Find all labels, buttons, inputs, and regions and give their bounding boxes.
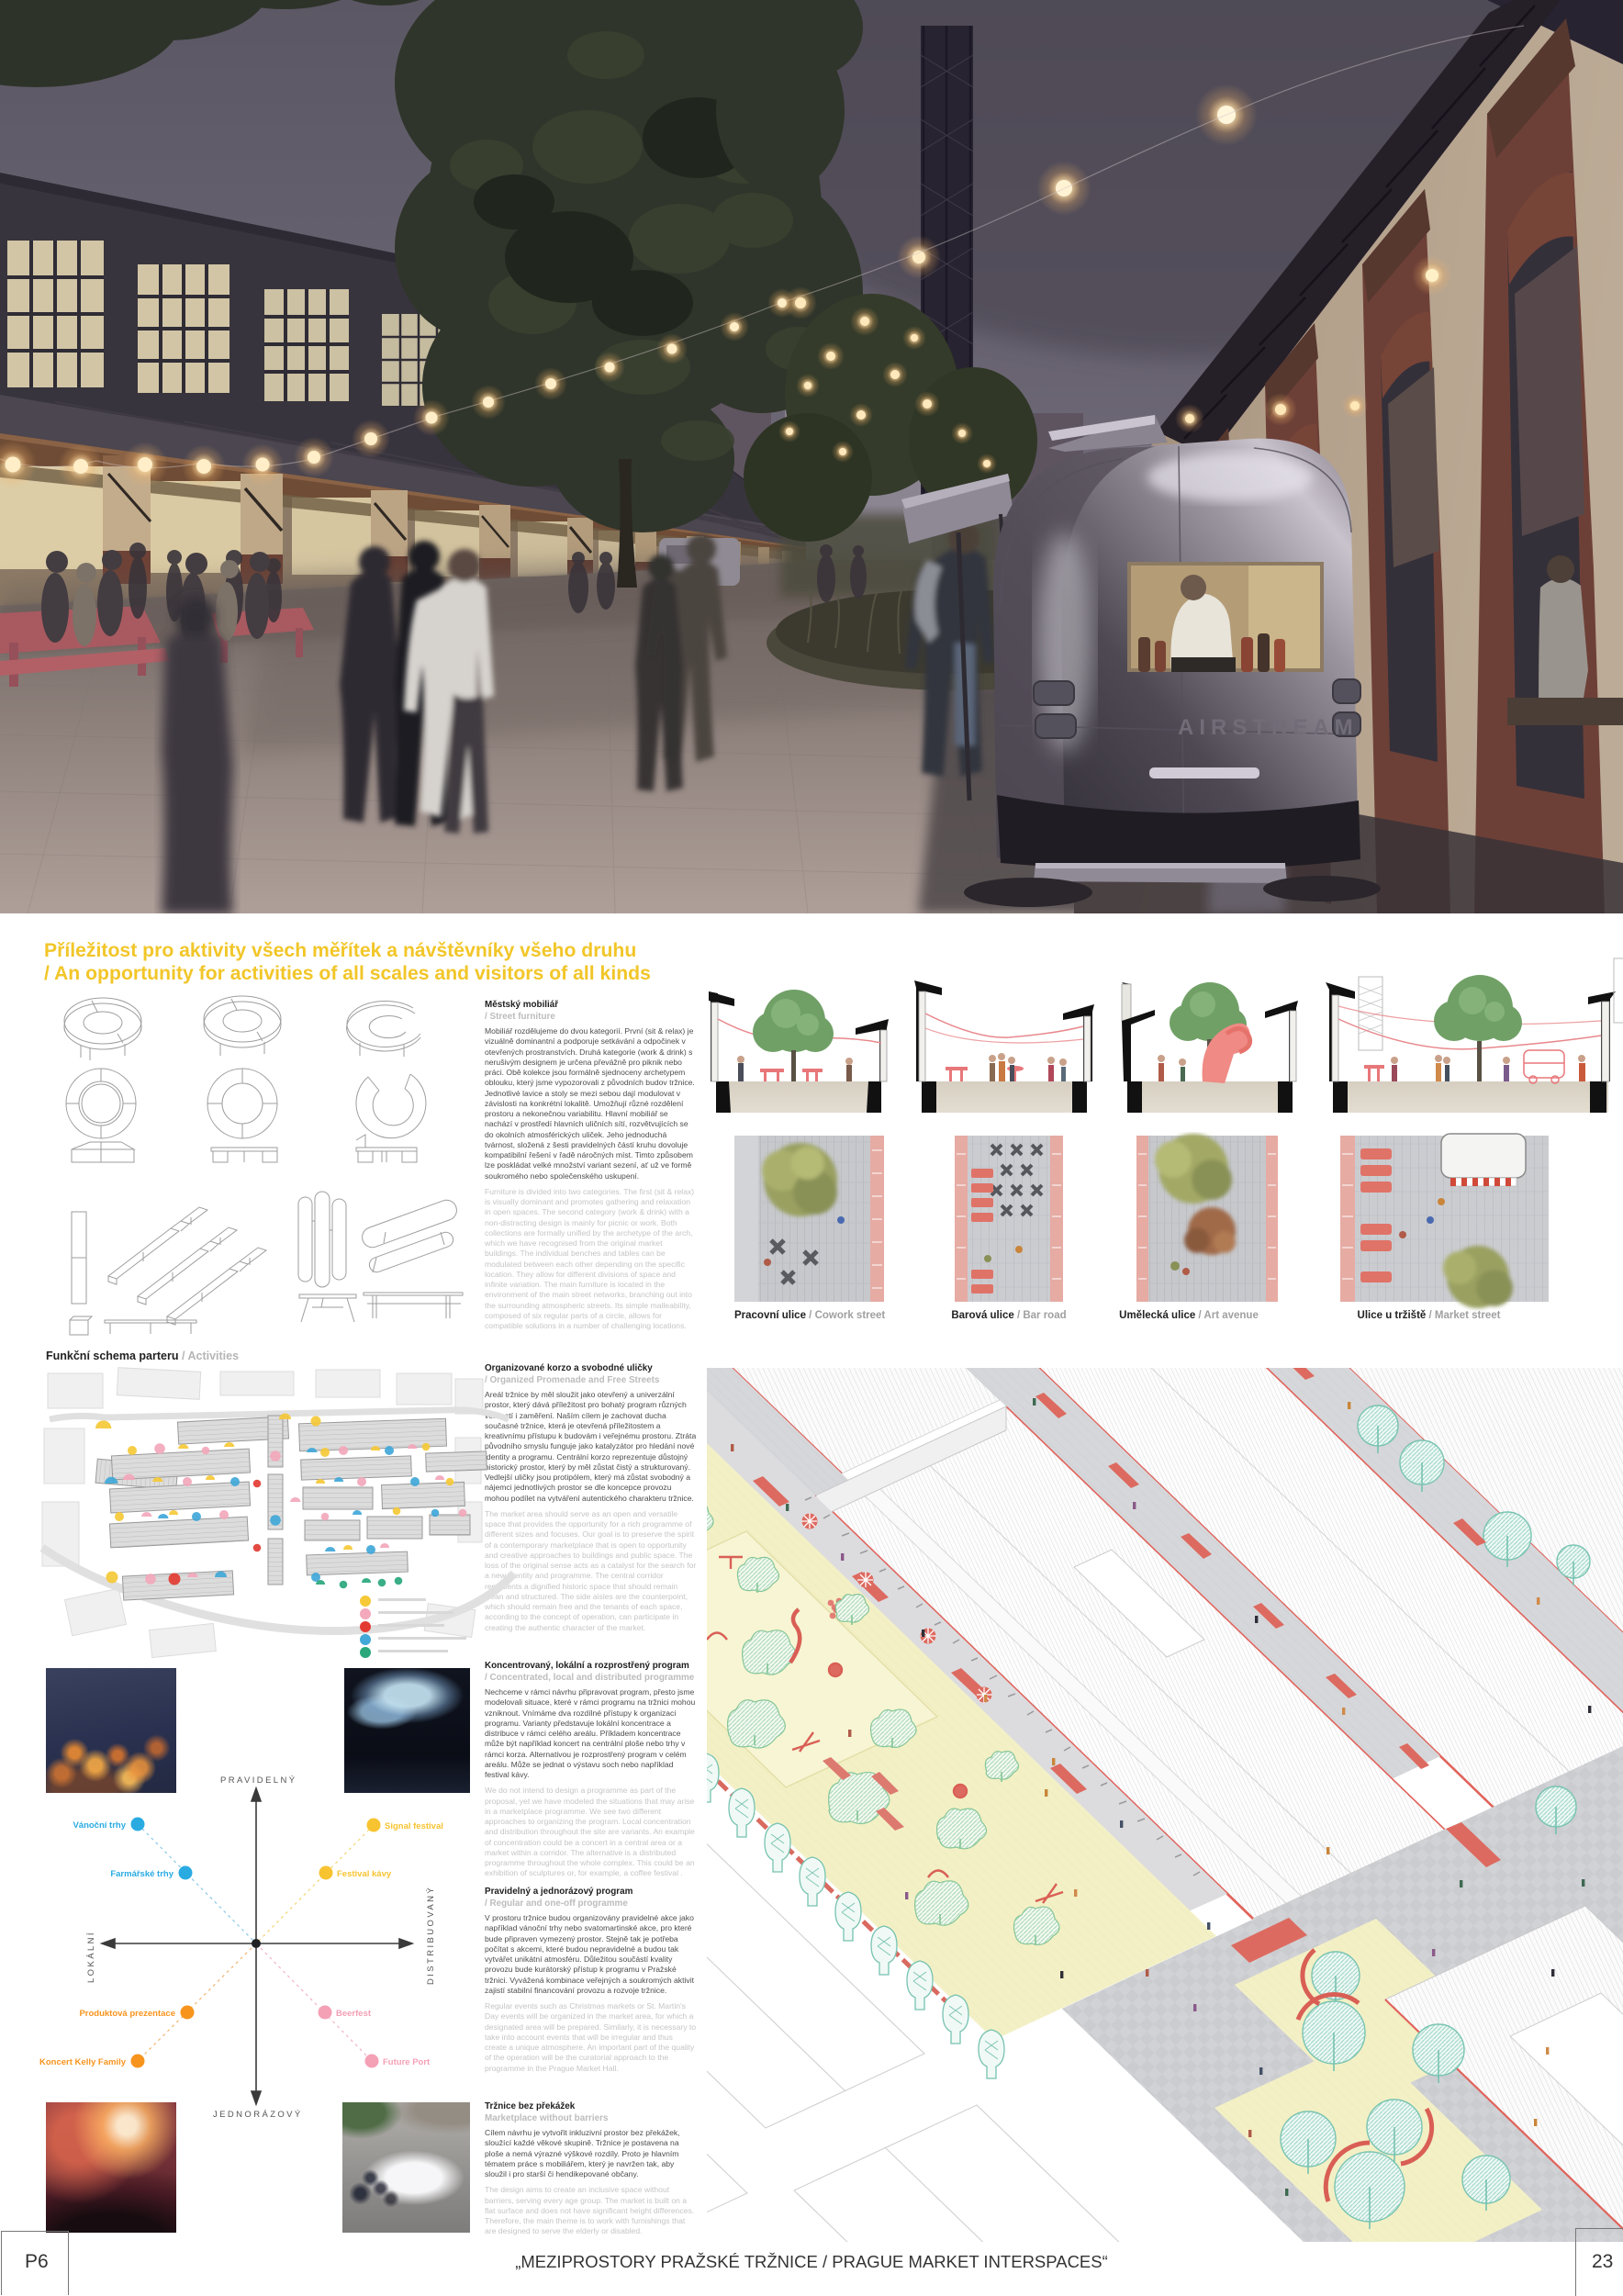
svg-text:Beerfest: Beerfest [336,2009,372,2019]
svg-text:Festival kávy: Festival kávy [337,1869,392,1879]
svg-text:DISTRIBUOVANÝ: DISTRIBUOVANÝ [426,1886,436,1985]
svg-text:Future Port: Future Port [383,2057,431,2067]
svg-text:Produktová prezentace: Produktová prezentace [79,2009,175,2019]
svg-text:Farmářské trhy: Farmářské trhy [110,1869,173,1879]
svg-text:JEDNORÁZOVÝ: JEDNORÁZOVÝ [213,2110,303,2120]
svg-text:LOKÁLNÍ: LOKÁLNÍ [86,1931,96,1983]
svg-text:Signal festival: Signal festival [385,1821,443,1831]
svg-text:Koncert Kelly Family: Koncert Kelly Family [39,2057,127,2067]
svg-text:PRAVIDELNÝ: PRAVIDELNÝ [220,1775,297,1786]
svg-text:Vánoční trhy: Vánoční trhy [73,1820,126,1831]
svg-text:AIRSTREAM: AIRSTREAM [1178,715,1359,740]
